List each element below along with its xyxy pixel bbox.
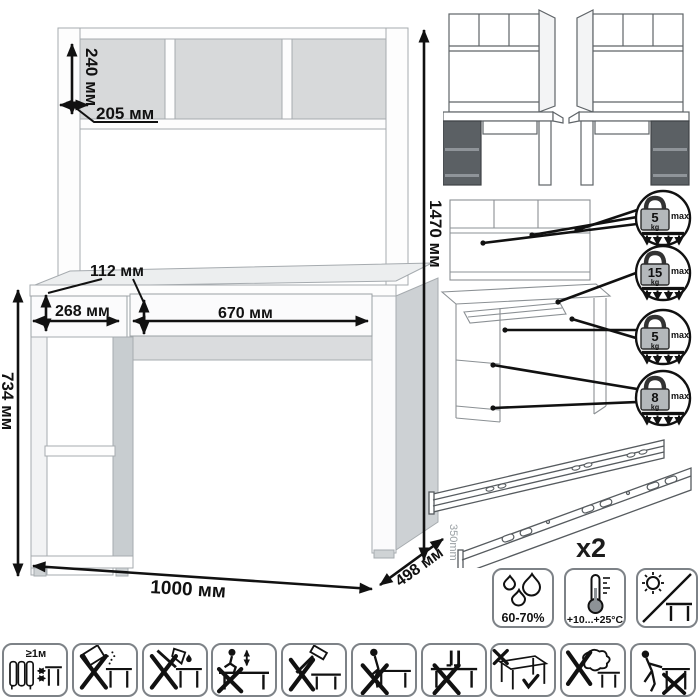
no-sharp-tools-icon	[144, 645, 206, 695]
no-abrasive-spill-tile	[72, 643, 138, 697]
no-jumping-icon	[213, 645, 275, 695]
load-limit-badge-pedestal: 8 kg max	[636, 371, 690, 425]
svg-text:8: 8	[651, 390, 658, 405]
svg-text:kg: kg	[651, 225, 659, 232]
no-standing-icon	[423, 645, 485, 695]
desk-variant-left-pedestal-icon	[443, 10, 563, 185]
svg-text:15: 15	[648, 265, 662, 280]
no-sharp-tools-tile	[142, 643, 208, 697]
no-wet-cloth-tile	[560, 643, 626, 697]
heater-distance-icon: ≥1м	[4, 645, 66, 695]
humidity-label: 60-70%	[501, 611, 544, 625]
svg-text:max: max	[671, 266, 689, 276]
dim-left-drawer-width: 268 мм	[55, 303, 110, 320]
desk-variant-right-pedestal-icon	[569, 10, 689, 185]
assembly-variants	[443, 4, 699, 194]
heater-distance-label: ≥1м	[26, 648, 47, 660]
product-dimension-sheet: 240 мм 205 мм 1470 мм 112 мм 268 мм 670 …	[0, 0, 699, 700]
humidity-icon: 60-70%	[494, 570, 552, 626]
exploded-desk-sketch	[442, 200, 610, 422]
no-sitting-tile	[351, 643, 417, 697]
carry-properly-icon	[492, 645, 554, 695]
svg-text:kg: kg	[651, 280, 659, 287]
temperature-tile: +10...+25°C	[564, 568, 626, 628]
no-wet-cloth-icon	[562, 645, 624, 695]
drawer-slides: 350mm x2	[428, 430, 699, 568]
no-jumping-tile	[211, 643, 277, 697]
no-direct-sunlight-icon	[638, 570, 696, 626]
temperature-label: +10...+25°C	[567, 614, 624, 626]
load-limit-badge-shelves: 5 kg max	[636, 191, 690, 245]
svg-text:max: max	[671, 391, 689, 401]
temperature-icon: +10...+25°C	[566, 570, 624, 626]
no-hammering-tile	[281, 643, 347, 697]
main-dimension-diagram: 240 мм 205 мм 1470 мм 112 мм 268 мм 670 …	[0, 0, 460, 660]
dim-drawer-height: 112 мм	[90, 263, 144, 280]
dim-right-drawer-width: 670 мм	[218, 305, 273, 322]
dim-width: 1000 мм	[150, 577, 227, 603]
dim-shelf-height: 240 мм	[82, 48, 101, 106]
no-sitting-icon	[353, 645, 415, 695]
carry-properly-tile	[490, 643, 556, 697]
no-hammering-icon	[283, 645, 345, 695]
no-dragging-icon	[632, 645, 694, 695]
heater-distance-tile: ≥1м	[2, 643, 68, 697]
no-abrasive-spill-icon	[74, 645, 136, 695]
svg-text:max: max	[671, 211, 689, 221]
svg-text:max: max	[671, 330, 689, 340]
svg-text:kg: kg	[651, 405, 659, 412]
dim-shelf-depth: 205 мм	[96, 104, 154, 123]
svg-text:5: 5	[651, 210, 658, 225]
svg-text:kg: kg	[651, 344, 659, 351]
rail-count-label: x2	[576, 533, 606, 563]
humidity-tile: 60-70%	[492, 568, 554, 628]
dim-desk-height: 734 мм	[0, 372, 17, 430]
desk-drawing	[30, 28, 438, 576]
svg-text:5: 5	[651, 329, 658, 344]
load-limit-diagram: 5 kg max 15 kg max	[438, 186, 699, 434]
drawer-slide-icon	[429, 440, 691, 568]
rail-length-label: 350mm	[447, 524, 459, 561]
load-limit-badge-desktop: 15 kg max	[636, 246, 690, 300]
load-limit-badge-drawers: 5 kg max	[636, 310, 690, 364]
no-standing-tile	[421, 643, 487, 697]
no-dragging-tile	[630, 643, 696, 697]
no-direct-sunlight-tile	[636, 568, 698, 628]
